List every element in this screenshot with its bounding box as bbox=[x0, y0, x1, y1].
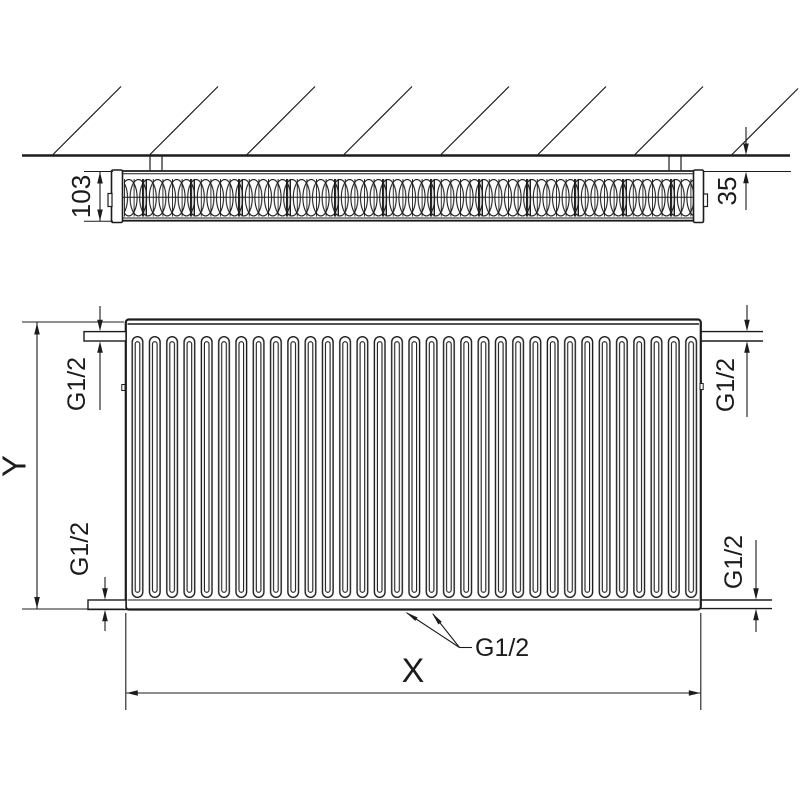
dim-length-label: X bbox=[402, 652, 425, 690]
connection-stub-bottom-right bbox=[701, 600, 772, 609]
front-view: Y X G1/2 G1/2 bbox=[0, 305, 772, 710]
dim-height: Y bbox=[0, 322, 124, 609]
dim-length: X bbox=[126, 613, 701, 710]
top-view: 103 35 bbox=[22, 87, 798, 223]
dim-conn-top-right-label: G1/2 bbox=[712, 358, 740, 412]
drawing-canvas: 103 35 bbox=[0, 0, 800, 800]
connection-boss-left bbox=[108, 194, 112, 207]
edge-mark-right bbox=[700, 384, 703, 390]
dim-conn-top-right: G1/2 bbox=[712, 305, 750, 417]
radiator-front-panel bbox=[122, 320, 703, 610]
end-cap-right bbox=[694, 170, 704, 223]
edge-mark-left bbox=[122, 385, 125, 391]
dim-conn-bottom-center-label: G1/2 bbox=[475, 634, 529, 662]
dim-conn-bottom-right: G1/2 bbox=[720, 535, 759, 632]
dim-wall-clearance-label: 35 bbox=[712, 177, 742, 206]
panel-grooves bbox=[129, 336, 700, 598]
dim-conn-bottom-left-label: G1/2 bbox=[66, 522, 94, 576]
dim-height-label: Y bbox=[0, 455, 33, 477]
dim-conn-bottom-left: G1/2 bbox=[66, 522, 108, 631]
mounting-bracket-right bbox=[669, 157, 681, 171]
dim-depth: 103 bbox=[66, 172, 113, 222]
connection-stub-bottom-left bbox=[88, 600, 126, 610]
dim-depth-label: 103 bbox=[66, 175, 96, 218]
dim-conn-top-left-label: G1/2 bbox=[63, 357, 91, 411]
connection-stub-top-left bbox=[84, 332, 126, 341]
connection-stub-top-right bbox=[701, 332, 763, 341]
end-cap-left bbox=[112, 170, 123, 223]
wall-hatching bbox=[53, 87, 798, 155]
wall-section bbox=[22, 87, 798, 156]
connection-boss-right bbox=[704, 194, 708, 207]
radiator-technical-drawing: 103 35 bbox=[0, 0, 800, 800]
dim-conn-bottom-right-label: G1/2 bbox=[720, 535, 748, 589]
mounting-bracket-left bbox=[150, 157, 162, 171]
radiator-top-view-body bbox=[108, 170, 708, 223]
